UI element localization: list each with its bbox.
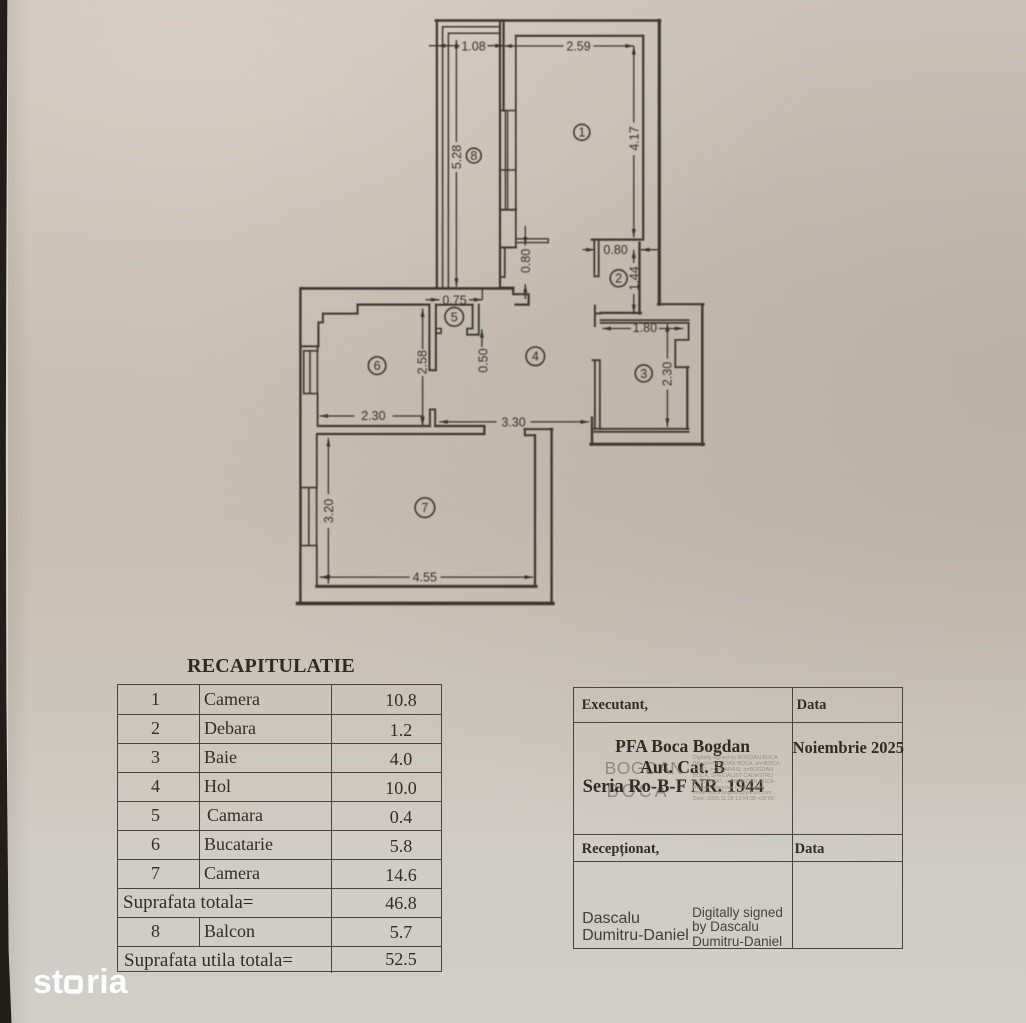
svg-text:4.55: 4.55 — [413, 570, 437, 584]
svg-text:4: 4 — [532, 350, 539, 364]
svg-text:4.17: 4.17 — [628, 126, 642, 150]
svg-text:ria: ria — [86, 963, 129, 1001]
svg-text:2.30: 2.30 — [361, 409, 385, 423]
svg-text:3.30: 3.30 — [501, 415, 525, 429]
svg-text:5: 5 — [451, 310, 458, 324]
svg-text:3: 3 — [640, 367, 647, 381]
svg-text:3.20: 3.20 — [322, 499, 336, 523]
svg-text:7: 7 — [421, 501, 428, 515]
svg-text:5.28: 5.28 — [450, 145, 464, 169]
svg-text:0.75: 0.75 — [442, 293, 466, 307]
svg-text:2.58: 2.58 — [416, 350, 430, 374]
svg-text:0.80: 0.80 — [603, 243, 627, 257]
svg-text:6: 6 — [374, 359, 381, 373]
svg-text:1.44: 1.44 — [628, 266, 642, 290]
svg-text:1.08: 1.08 — [461, 39, 485, 53]
svg-text:1.80: 1.80 — [633, 321, 657, 335]
svg-text:st: st — [33, 963, 63, 1001]
svg-text:8: 8 — [470, 149, 477, 163]
svg-text:1: 1 — [578, 126, 585, 140]
svg-text:0.50: 0.50 — [477, 348, 491, 372]
svg-text:2.30: 2.30 — [661, 362, 675, 386]
svg-text:2.59: 2.59 — [566, 40, 590, 54]
svg-text:2: 2 — [615, 272, 622, 286]
svg-text:0.80: 0.80 — [519, 249, 533, 273]
